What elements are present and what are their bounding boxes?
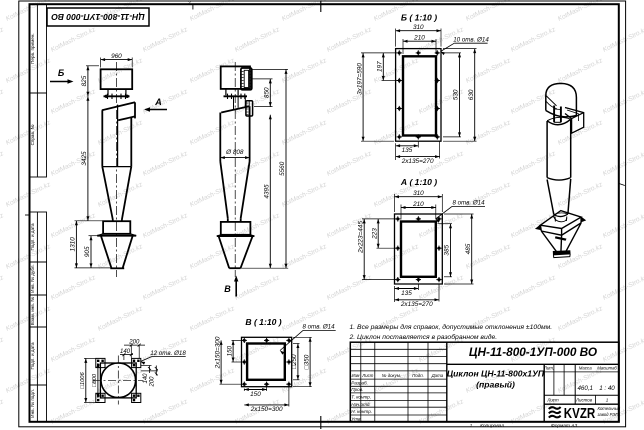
svg-text:Подп.: Подп. — [412, 373, 424, 378]
svg-text:Лит.: Лит. — [543, 366, 554, 371]
svg-text:(правый): (правый) — [476, 380, 515, 390]
svg-text:Дата: Дата — [431, 373, 444, 378]
svg-text:210: 210 — [413, 35, 425, 42]
svg-text:А: А — [154, 97, 162, 107]
svg-text:135: 135 — [402, 147, 413, 154]
svg-text:530: 530 — [453, 89, 460, 100]
svg-text:2х135=270: 2х135=270 — [401, 158, 434, 165]
svg-text:Нач.отд.: Нач.отд. — [351, 402, 370, 407]
svg-text:Циклон ЦН-11-800х1УП: Циклон ЦН-11-800х1УП — [447, 368, 545, 378]
svg-text:Разраб.: Разраб. — [351, 381, 368, 386]
svg-text:1. Все размеры для справок, до: 1. Все размеры для справок, допустимые о… — [350, 323, 553, 331]
svg-text:2х150=300: 2х150=300 — [214, 336, 221, 369]
svg-text:Ø 808: Ø 808 — [225, 149, 244, 156]
svg-text:Инв. № подл.: Инв. № подл. — [30, 389, 35, 418]
svg-text:150: 150 — [226, 345, 233, 356]
svg-text:310: 310 — [413, 24, 424, 31]
svg-text:Инв. № дубл.: Инв. № дубл. — [30, 264, 35, 292]
svg-text:3х197=590: 3х197=590 — [356, 63, 363, 95]
svg-text:5560: 5560 — [279, 161, 286, 176]
svg-text:ЦН-11-800-1УП-000 ВО: ЦН-11-800-1УП-000 ВО — [51, 12, 145, 22]
svg-text:Б: Б — [58, 68, 65, 78]
svg-text:Изм: Изм — [352, 373, 360, 378]
svg-text:Справ. №: Справ. № — [30, 125, 35, 146]
svg-text:Б ( 1:10 ): Б ( 1:10 ) — [401, 13, 437, 23]
svg-text:□250: □250 — [291, 354, 298, 369]
svg-text:Лист: Лист — [361, 373, 373, 378]
svg-text:В ( 1:10 ): В ( 1:10 ) — [245, 317, 281, 327]
svg-text:210: 210 — [412, 201, 424, 208]
svg-text:А ( 1:10 ): А ( 1:10 ) — [400, 177, 437, 187]
svg-text:№ докум.: № докум. — [382, 373, 401, 378]
svg-text:Т. контр.: Т. контр. — [351, 395, 371, 400]
svg-text:10 отв. Ø14: 10 отв. Ø14 — [453, 37, 489, 44]
svg-text:140: 140 — [120, 349, 131, 355]
svg-text:197: 197 — [377, 61, 384, 72]
svg-text:905: 905 — [84, 246, 91, 257]
svg-text:Листов: Листов — [575, 398, 593, 403]
svg-text:850: 850 — [264, 87, 271, 98]
svg-text:140: 140 — [143, 373, 149, 384]
svg-text:135: 135 — [401, 290, 412, 297]
svg-text:1: 1 — [606, 398, 609, 403]
svg-text:KVZR: KVZR — [564, 406, 596, 422]
svg-text:Формат А3: Формат А3 — [551, 423, 578, 429]
svg-text:825: 825 — [81, 75, 88, 86]
svg-text:310: 310 — [413, 190, 424, 197]
svg-text:Котельный: Котельный — [598, 406, 621, 411]
svg-text:12 отв. Ø18: 12 отв. Ø18 — [150, 350, 186, 357]
svg-text:2х135=270: 2х135=270 — [400, 301, 433, 308]
svg-text:Масштаб: Масштаб — [597, 366, 617, 371]
svg-text:Н. контр.: Н. контр. — [351, 409, 372, 414]
svg-text:8 отв. Ø14: 8 отв. Ø14 — [452, 200, 485, 207]
svg-text:4395: 4395 — [263, 184, 270, 199]
svg-text:2х223=445: 2х223=445 — [357, 221, 364, 254]
svg-text:Подп. и дата: Подп. и дата — [30, 342, 35, 370]
svg-text:Пров.: Пров. — [351, 387, 363, 392]
svg-text:□350: □350 — [303, 354, 310, 369]
svg-text:150: 150 — [250, 391, 261, 398]
svg-text:Копировал: Копировал — [480, 423, 504, 429]
svg-text:223: 223 — [371, 228, 378, 240]
svg-text:В: В — [224, 284, 231, 294]
svg-text:Утв.: Утв. — [351, 417, 361, 422]
svg-text:630: 630 — [468, 89, 475, 100]
svg-text:ЦН-11-800-1УП-000 ВО: ЦН-11-800-1УП-000 ВО — [469, 345, 597, 359]
svg-text:1 : 40: 1 : 40 — [599, 385, 615, 392]
svg-text:Лист: Лист — [546, 398, 559, 403]
svg-text:Масса: Масса — [579, 366, 593, 371]
svg-text:200: 200 — [128, 339, 140, 345]
svg-text:□1006: □1006 — [80, 371, 86, 388]
svg-text:Перв. примен.: Перв. примен. — [30, 33, 35, 64]
svg-text:□800: □800 — [92, 373, 98, 387]
svg-text:3425: 3425 — [81, 151, 88, 166]
svg-text:385: 385 — [444, 244, 451, 255]
svg-text:2. Циклон поставляется в разоб: 2. Циклон поставляется в разобранном вид… — [349, 333, 498, 341]
svg-text:485: 485 — [465, 243, 472, 254]
svg-text:1: 1 — [470, 423, 473, 429]
svg-text:8 отв. Ø14: 8 отв. Ø14 — [302, 324, 335, 331]
svg-text:1310: 1310 — [70, 237, 77, 252]
svg-text:2х150=300: 2х150=300 — [250, 406, 283, 413]
svg-text:Подп. и дата: Подп. и дата — [30, 223, 35, 251]
svg-text:200: 200 — [150, 376, 156, 388]
svg-text:завод РЭП: завод РЭП — [597, 412, 620, 417]
svg-text:460,1: 460,1 — [577, 385, 592, 392]
svg-text:960: 960 — [111, 53, 122, 60]
svg-text:Взам. инв. №: Взам. инв. № — [30, 297, 35, 326]
